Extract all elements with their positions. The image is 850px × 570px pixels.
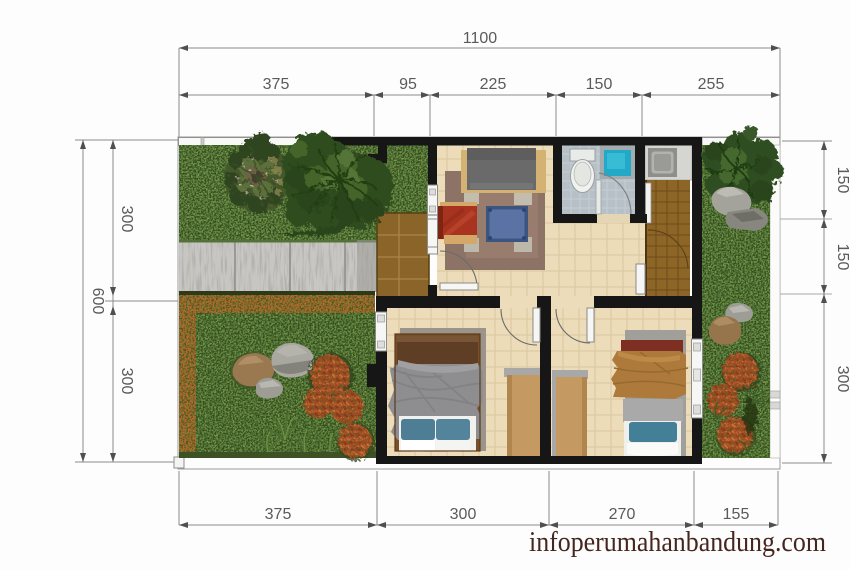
svg-text:95: 95 bbox=[399, 76, 417, 93]
svg-text:150: 150 bbox=[586, 76, 613, 93]
svg-text:600: 600 bbox=[89, 288, 106, 315]
svg-text:300: 300 bbox=[118, 368, 135, 395]
svg-text:1100: 1100 bbox=[463, 30, 498, 47]
svg-text:225: 225 bbox=[480, 76, 507, 93]
svg-text:300: 300 bbox=[450, 506, 477, 523]
svg-text:150: 150 bbox=[834, 167, 850, 194]
svg-text:375: 375 bbox=[265, 506, 292, 523]
svg-text:155: 155 bbox=[723, 506, 750, 523]
svg-text:150: 150 bbox=[834, 244, 850, 271]
svg-text:300: 300 bbox=[834, 366, 850, 393]
svg-text:255: 255 bbox=[698, 76, 725, 93]
svg-text:270: 270 bbox=[609, 506, 636, 523]
svg-text:375: 375 bbox=[263, 76, 290, 93]
svg-text:infoperumahanbandung.com: infoperumahanbandung.com bbox=[529, 526, 826, 558]
svg-text:300: 300 bbox=[118, 206, 135, 233]
